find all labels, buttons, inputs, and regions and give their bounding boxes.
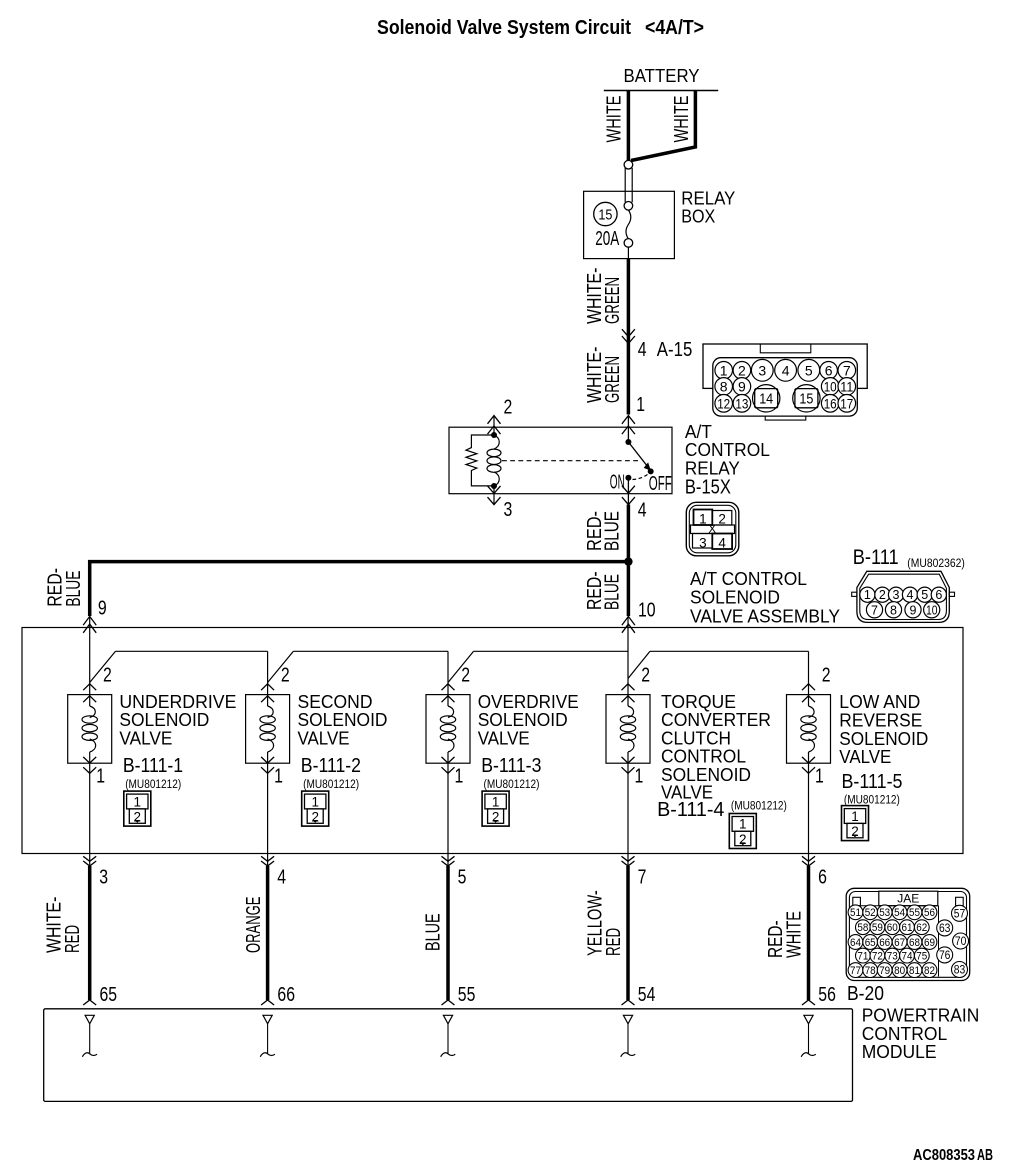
svg-text:82: 82 [924,965,935,977]
svg-text:(MU801212): (MU801212) [125,779,181,791]
svg-text:62: 62 [916,922,927,934]
svg-text:SOLENOID: SOLENOID [119,710,209,730]
svg-text:(MU802362): (MU802362) [907,558,965,570]
svg-text:WHITE: WHITE [671,96,693,143]
svg-text:76: 76 [939,950,951,962]
svg-text:6: 6 [818,866,827,888]
svg-text:LOW AND: LOW AND [839,692,920,712]
svg-text:B-111: B-111 [853,546,899,569]
svg-text:ORANGE: ORANGE [243,897,265,953]
svg-text:CONTROL: CONTROL [862,1024,948,1044]
svg-text:69: 69 [924,937,935,949]
svg-text:7: 7 [871,604,878,618]
svg-text:75: 75 [916,951,927,963]
svg-text:7: 7 [843,362,851,378]
svg-text:AC808353: AC808353 [913,1147,975,1164]
svg-text:BATTERY: BATTERY [624,66,700,86]
svg-text:78: 78 [865,965,876,977]
svg-text:AB: AB [977,1147,993,1164]
svg-text:1: 1 [635,766,644,788]
svg-text:SECOND: SECOND [298,692,373,712]
svg-text:POWERTRAIN: POWERTRAIN [862,1006,980,1026]
svg-text:5: 5 [805,362,813,378]
svg-text:8: 8 [720,378,728,394]
svg-text:60: 60 [887,922,898,934]
svg-text:4: 4 [718,536,726,551]
svg-text:65: 65 [865,937,876,949]
svg-text:56: 56 [818,984,836,1006]
svg-text:4: 4 [277,866,286,888]
svg-text:REVERSE: REVERSE [839,711,922,731]
svg-text:B-15X: B-15X [685,476,731,498]
svg-text:3: 3 [699,536,707,551]
svg-text:72: 72 [872,951,883,963]
svg-text:3: 3 [758,362,766,378]
svg-text:(MU801212): (MU801212) [844,794,900,806]
svg-text:VALVE ASSEMBLY: VALVE ASSEMBLY [690,607,840,627]
svg-text:UNDERDRIVE: UNDERDRIVE [119,692,236,712]
svg-text:VALVE: VALVE [119,728,172,748]
svg-text:83: 83 [954,965,966,977]
svg-text:A/T CONTROL: A/T CONTROL [690,569,807,589]
svg-text:SOLENOID: SOLENOID [478,710,568,730]
svg-text:(MU801212): (MU801212) [303,779,359,791]
svg-text:9: 9 [98,597,107,619]
svg-text:2: 2 [718,511,726,526]
svg-text:2: 2 [461,665,470,687]
svg-text:CONVERTER: CONVERTER [661,710,771,730]
svg-text:1: 1 [636,394,645,416]
svg-text:2: 2 [103,665,112,687]
svg-text:11: 11 [840,378,853,394]
svg-text:BLUE: BLUE [602,511,624,551]
svg-text:BOX: BOX [681,206,715,226]
svg-text:52: 52 [865,907,876,919]
svg-text:1: 1 [96,766,105,788]
svg-text:SOLENOID: SOLENOID [298,710,388,730]
svg-text:1: 1 [699,511,707,526]
svg-text:2: 2 [879,588,886,602]
svg-text:79: 79 [879,965,890,977]
svg-text:68: 68 [909,937,920,949]
svg-text:1: 1 [739,817,747,832]
svg-text:81: 81 [909,965,920,977]
svg-text:63: 63 [939,923,951,935]
svg-text:55: 55 [909,907,920,919]
svg-text:64: 64 [850,937,861,949]
svg-text:3: 3 [99,866,108,888]
svg-text:B-111-5: B-111-5 [842,771,903,793]
svg-text:X: X [708,522,716,536]
svg-text:RED: RED [62,925,84,953]
svg-text:CLUTCH: CLUTCH [661,728,731,748]
svg-text:RED: RED [603,928,625,956]
svg-text:2: 2 [281,665,290,687]
svg-text:16: 16 [824,395,837,411]
svg-text:2: 2 [641,665,650,687]
svg-text:4: 4 [638,499,647,521]
svg-text:B-111-4: B-111-4 [657,799,724,821]
svg-text:BLUE: BLUE [63,571,85,607]
svg-text:1: 1 [815,766,824,788]
svg-text:CONTROL: CONTROL [661,747,746,767]
svg-text:55: 55 [458,984,476,1006]
svg-text:71: 71 [857,951,868,963]
svg-text:3: 3 [893,588,900,602]
svg-text:15: 15 [799,392,813,408]
svg-text:8: 8 [890,604,897,618]
svg-text:59: 59 [872,922,883,934]
svg-text:54: 54 [894,907,905,919]
svg-text:9: 9 [910,604,917,618]
svg-text:12: 12 [717,395,730,411]
svg-text:B-111-1: B-111-1 [123,755,183,777]
svg-text:17: 17 [840,395,853,411]
svg-text:2: 2 [738,362,746,378]
svg-text:2: 2 [504,396,513,418]
svg-text:WHITE: WHITE [604,96,626,143]
svg-text:1: 1 [851,809,859,824]
svg-text:10: 10 [638,600,656,622]
svg-text:70: 70 [955,936,967,948]
svg-text:14: 14 [759,392,773,408]
svg-text:WHITE: WHITE [784,911,806,958]
svg-text:SOLENOID: SOLENOID [690,588,780,608]
svg-text:SOLENOID: SOLENOID [839,729,928,749]
svg-text:5: 5 [458,866,467,888]
svg-text:1: 1 [492,794,500,809]
svg-text:10: 10 [926,604,938,618]
svg-text:58: 58 [857,922,868,934]
svg-text:13: 13 [735,395,748,411]
svg-text:66: 66 [879,937,890,949]
svg-text:JAE: JAE [897,892,919,906]
svg-text:15: 15 [598,207,612,223]
svg-text:A-15: A-15 [657,339,693,361]
svg-text:66: 66 [277,984,295,1006]
svg-text:1: 1 [274,766,283,788]
svg-text:4: 4 [907,588,914,602]
svg-text:Solenoid Valve System Circuit: Solenoid Valve System Circuit [377,16,631,39]
svg-text:7: 7 [638,866,647,888]
svg-text:TORQUE: TORQUE [661,692,736,712]
svg-text:80: 80 [894,965,905,977]
svg-text:B-111-2: B-111-2 [301,755,361,777]
svg-text:53: 53 [879,907,890,919]
svg-text:B-20: B-20 [847,983,884,1005]
svg-text:BLUE: BLUE [602,574,624,610]
svg-text:1: 1 [311,794,319,809]
svg-text:1: 1 [720,362,728,378]
svg-text:(MU801212): (MU801212) [484,779,540,791]
svg-text:CONTROL: CONTROL [685,440,770,460]
svg-text:(MU801212): (MU801212) [731,801,787,813]
svg-text:GREEN: GREEN [602,277,624,324]
svg-text:10: 10 [824,378,837,394]
svg-text:4: 4 [782,362,790,378]
svg-text:9: 9 [738,378,746,394]
svg-text:77: 77 [850,965,861,977]
svg-text:VALVE: VALVE [839,747,891,767]
svg-text:BLUE: BLUE [423,913,445,951]
svg-text:OFF: OFF [649,473,672,495]
svg-text:VALVE: VALVE [298,728,350,748]
svg-text:1: 1 [864,588,871,602]
svg-text:ON: ON [610,471,625,493]
svg-text:VALVE: VALVE [478,728,530,748]
svg-text:OVERDRIVE: OVERDRIVE [478,692,579,712]
svg-text:<4A/T>: <4A/T> [645,16,704,39]
svg-text:MODULE: MODULE [862,1042,937,1062]
svg-text:6: 6 [825,362,833,378]
svg-text:20A: 20A [595,228,619,250]
svg-text:74: 74 [902,951,913,963]
svg-text:6: 6 [935,588,942,602]
svg-text:51: 51 [850,907,861,919]
svg-text:GREEN: GREEN [602,356,624,403]
svg-text:73: 73 [887,951,898,963]
svg-text:65: 65 [100,984,118,1006]
svg-text:2: 2 [822,665,831,687]
svg-text:B-111-3: B-111-3 [481,755,541,777]
svg-text:56: 56 [924,907,935,919]
svg-text:61: 61 [902,922,913,934]
svg-text:5: 5 [921,588,928,602]
svg-text:54: 54 [638,984,656,1006]
svg-text:1: 1 [455,766,464,788]
svg-text:3: 3 [504,499,513,521]
svg-text:4: 4 [638,339,647,361]
svg-text:57: 57 [954,908,966,920]
svg-text:1: 1 [134,794,142,809]
svg-text:67: 67 [894,937,905,949]
